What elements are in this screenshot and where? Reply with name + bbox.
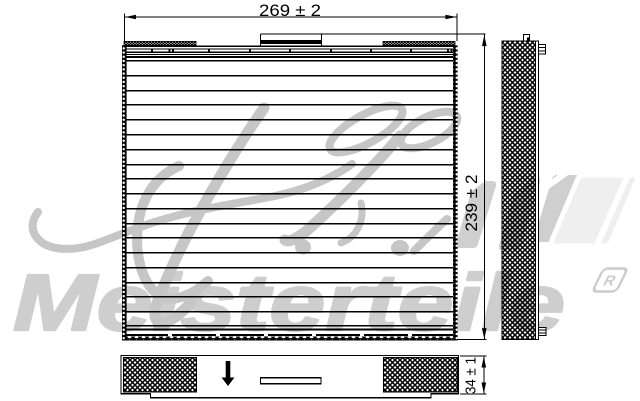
svg-text:239 ± 2: 239 ± 2 (462, 175, 481, 232)
svg-text:34 ± 1: 34 ± 1 (463, 357, 480, 394)
svg-text:269 ± 2: 269 ± 2 (259, 1, 321, 20)
